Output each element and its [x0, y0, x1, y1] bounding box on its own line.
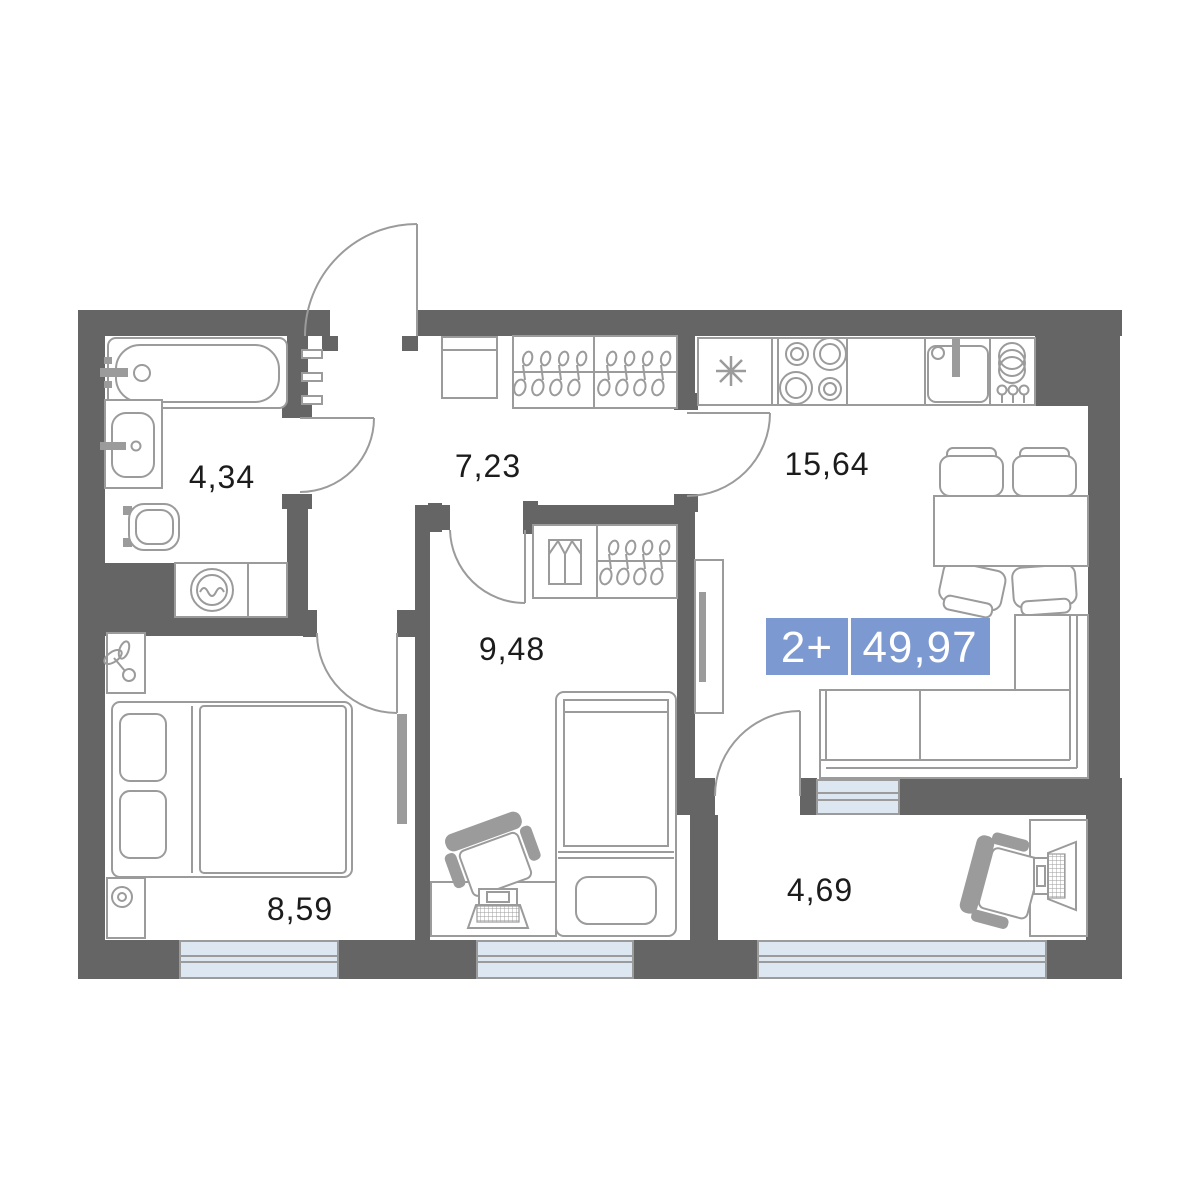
- tv-unit: [695, 560, 723, 713]
- floorplan-page: 4,34 7,23 15,64 9,48 8,59 4,69 2+ 49,97: [0, 0, 1200, 1200]
- dining-table-group: [934, 448, 1088, 620]
- loggia-fixtures: [956, 820, 1087, 936]
- badge-total-area: 49,97: [862, 623, 977, 672]
- nightstand-plant: [102, 633, 145, 693]
- hallway-fixtures: [442, 336, 677, 408]
- room-label-kitchen-living: 15,64: [784, 446, 869, 482]
- window-second-bedroom: [477, 941, 633, 978]
- bathroom-door-arc: [300, 418, 374, 492]
- chair-icon: [1013, 448, 1076, 496]
- chair-icon: [940, 448, 1003, 496]
- double-bed-icon: [112, 702, 352, 877]
- room-label-hallway: 7,23: [455, 448, 521, 484]
- wardrobe: [533, 525, 677, 598]
- room-label-bathroom: 4,34: [189, 459, 255, 495]
- master-bedroom-fixtures: [102, 633, 407, 938]
- chair-icon: [1012, 564, 1078, 616]
- tv-icon: [699, 592, 706, 682]
- wardrobe-panel: [397, 714, 407, 824]
- kitchen-fixtures: [695, 338, 1088, 778]
- room-label-bedroom-master: 8,59: [267, 891, 333, 927]
- dining-table-icon: [934, 496, 1088, 566]
- room-label-loggia: 4,69: [787, 872, 853, 908]
- towel-rail-icon: [302, 350, 322, 404]
- window-living-loggia: [817, 780, 899, 814]
- room-label-bedroom-second: 9,48: [479, 631, 545, 667]
- apartment-badge: 2+ 49,97: [766, 618, 990, 675]
- toilet-icon: [123, 504, 179, 550]
- chair-icon: [936, 560, 1008, 620]
- washing-machine-icon: [175, 563, 287, 617]
- kitchen-door-arc: [687, 413, 770, 496]
- single-bed-icon: [556, 692, 676, 936]
- floorplan-drawing: 4,34 7,23 15,64 9,48 8,59 4,69 2+ 49,97: [0, 0, 1200, 1200]
- window-bedroom: [180, 941, 338, 978]
- bench-icon: [442, 337, 497, 398]
- sink-icon: [100, 400, 162, 488]
- loggia-door-arc: [715, 711, 800, 796]
- second-bedroom-fixtures: [431, 525, 677, 936]
- second-bedroom-door-arc: [450, 530, 525, 603]
- bathtub-icon: [100, 338, 287, 408]
- badge-rooms-count: 2+: [781, 623, 833, 672]
- nightstand-lamp: [107, 878, 145, 938]
- window-loggia: [758, 941, 1046, 978]
- hallway-wardrobe: [512, 336, 677, 408]
- fridge-snowflake-icon: [716, 356, 746, 386]
